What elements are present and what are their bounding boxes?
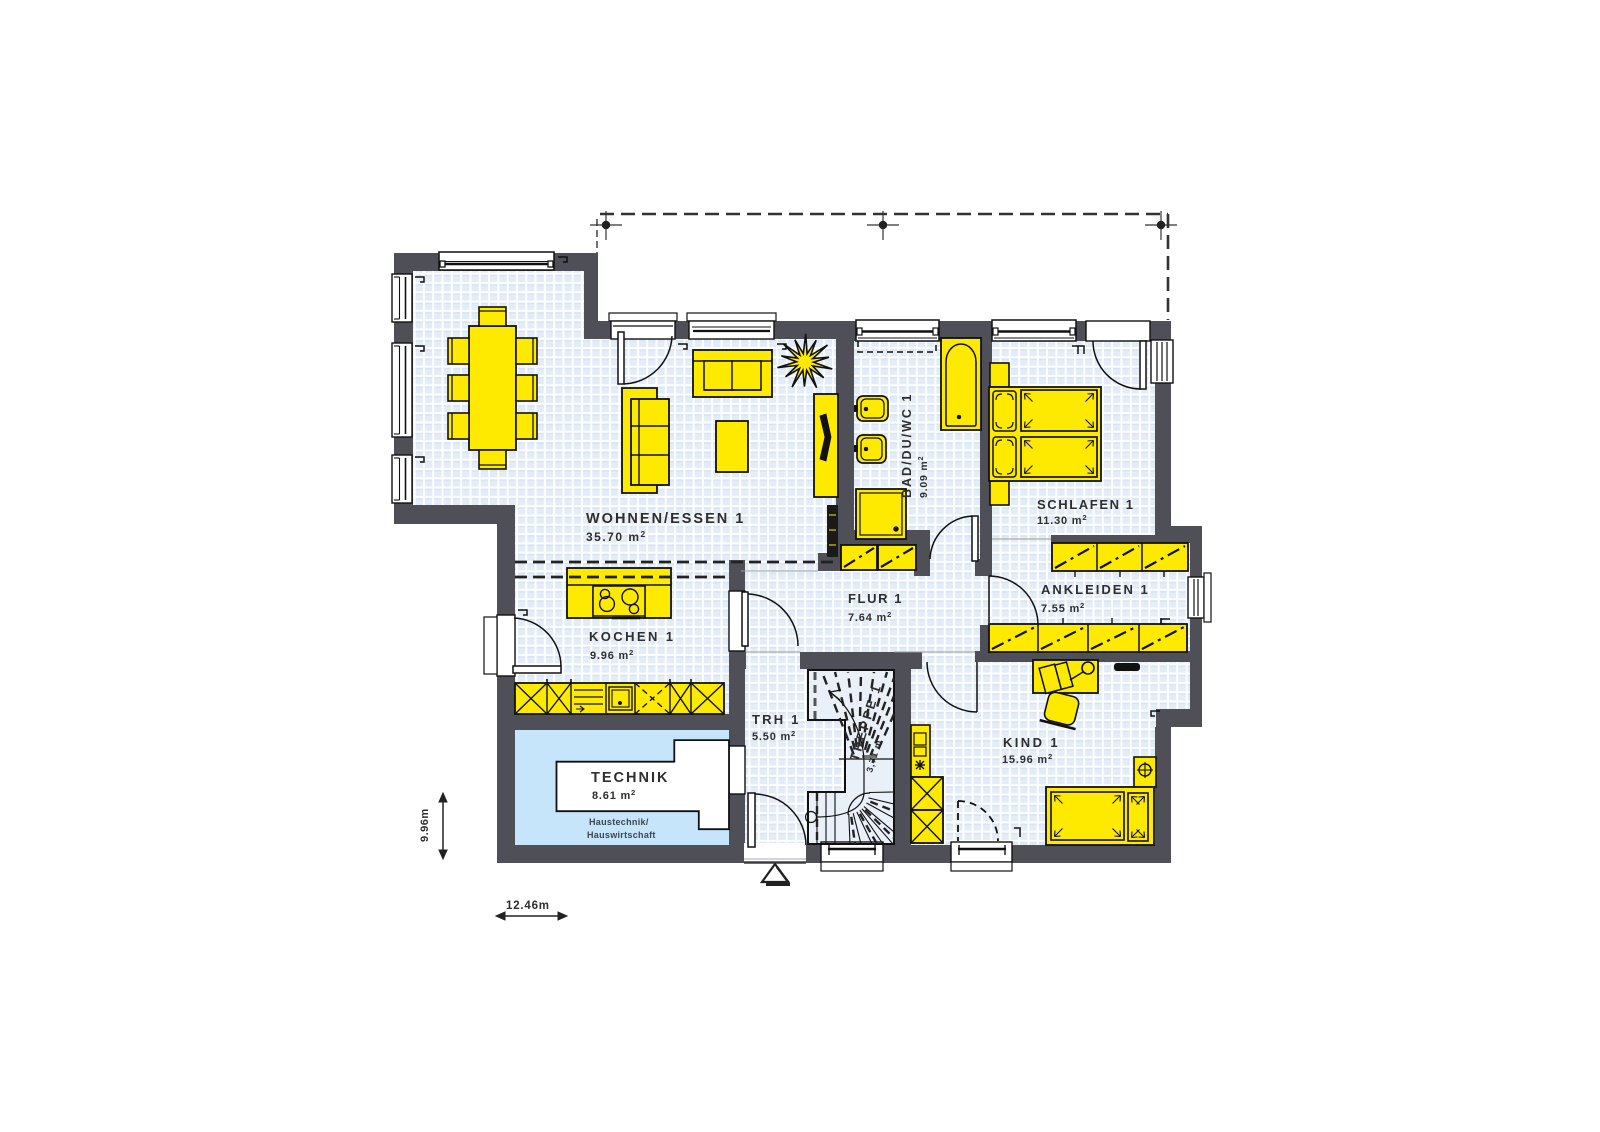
svg-text:FLUR 1: FLUR 1 [848,591,903,606]
svg-text:9.09 m2: 9.09 m2 [916,456,930,498]
svg-text:TRH 1: TRH 1 [752,712,801,727]
svg-text:KIND 1: KIND 1 [1003,735,1060,750]
svg-text:Haustechnik/: Haustechnik/ [589,817,649,827]
svg-text:WOHNEN/ESSEN 1: WOHNEN/ESSEN 1 [586,511,745,527]
svg-text:7.64 m2: 7.64 m2 [848,610,892,624]
svg-text:BAD/DU/WC 1: BAD/DU/WC 1 [900,393,914,498]
svg-text:11.30 m2: 11.30 m2 [1037,513,1087,527]
svg-text:35.70 m2: 35.70 m2 [586,529,647,544]
svg-text:TECHNIK: TECHNIK [591,770,669,786]
svg-text:ANKLEIDEN 1: ANKLEIDEN 1 [1041,582,1150,597]
svg-text:KOCHEN 1: KOCHEN 1 [589,629,675,644]
svg-text:7.55 m2: 7.55 m2 [1041,601,1085,615]
svg-text:SCHLAFEN 1: SCHLAFEN 1 [1037,497,1135,512]
svg-text:9.96m: 9.96m [419,808,431,842]
svg-text:5.50 m2: 5.50 m2 [752,729,796,743]
svg-text:15.96 m2: 15.96 m2 [1002,752,1053,766]
svg-text:8.61 m2: 8.61 m2 [592,788,636,802]
svg-text:9.96 m2: 9.96 m2 [590,648,634,662]
svg-text:12.46m: 12.46m [506,900,550,912]
svg-text:Hauswirtschaft: Hauswirtschaft [587,830,656,840]
